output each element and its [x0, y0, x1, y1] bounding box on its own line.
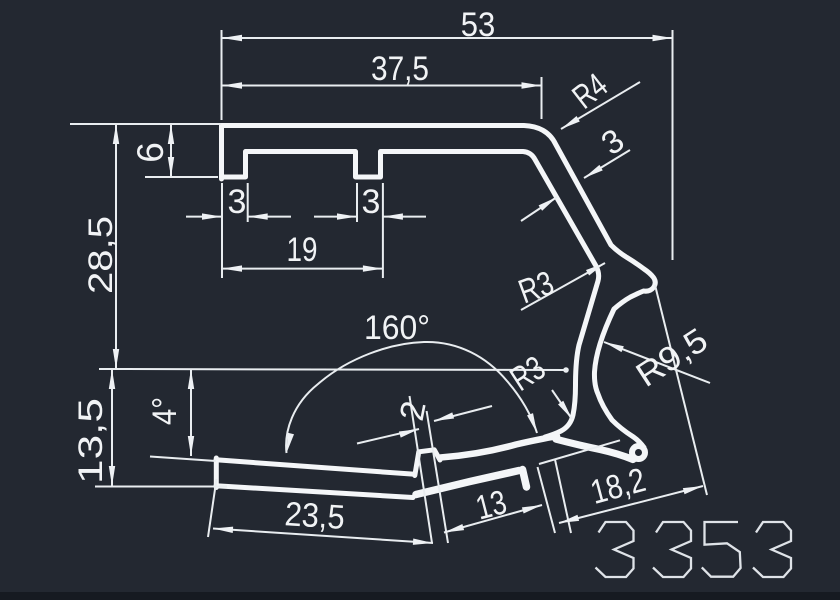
- svg-text:3: 3: [228, 183, 247, 221]
- svg-text:13,5: 13,5: [72, 398, 110, 484]
- svg-text:37,5: 37,5: [371, 50, 429, 88]
- svg-text:160°: 160°: [364, 309, 430, 347]
- svg-text:6: 6: [130, 142, 171, 163]
- svg-text:28,5: 28,5: [82, 216, 120, 294]
- svg-text:4°: 4°: [146, 397, 184, 425]
- svg-text:53: 53: [461, 6, 496, 44]
- svg-text:3: 3: [362, 183, 381, 221]
- svg-text:19: 19: [287, 231, 318, 269]
- svg-text:23,5: 23,5: [284, 495, 346, 537]
